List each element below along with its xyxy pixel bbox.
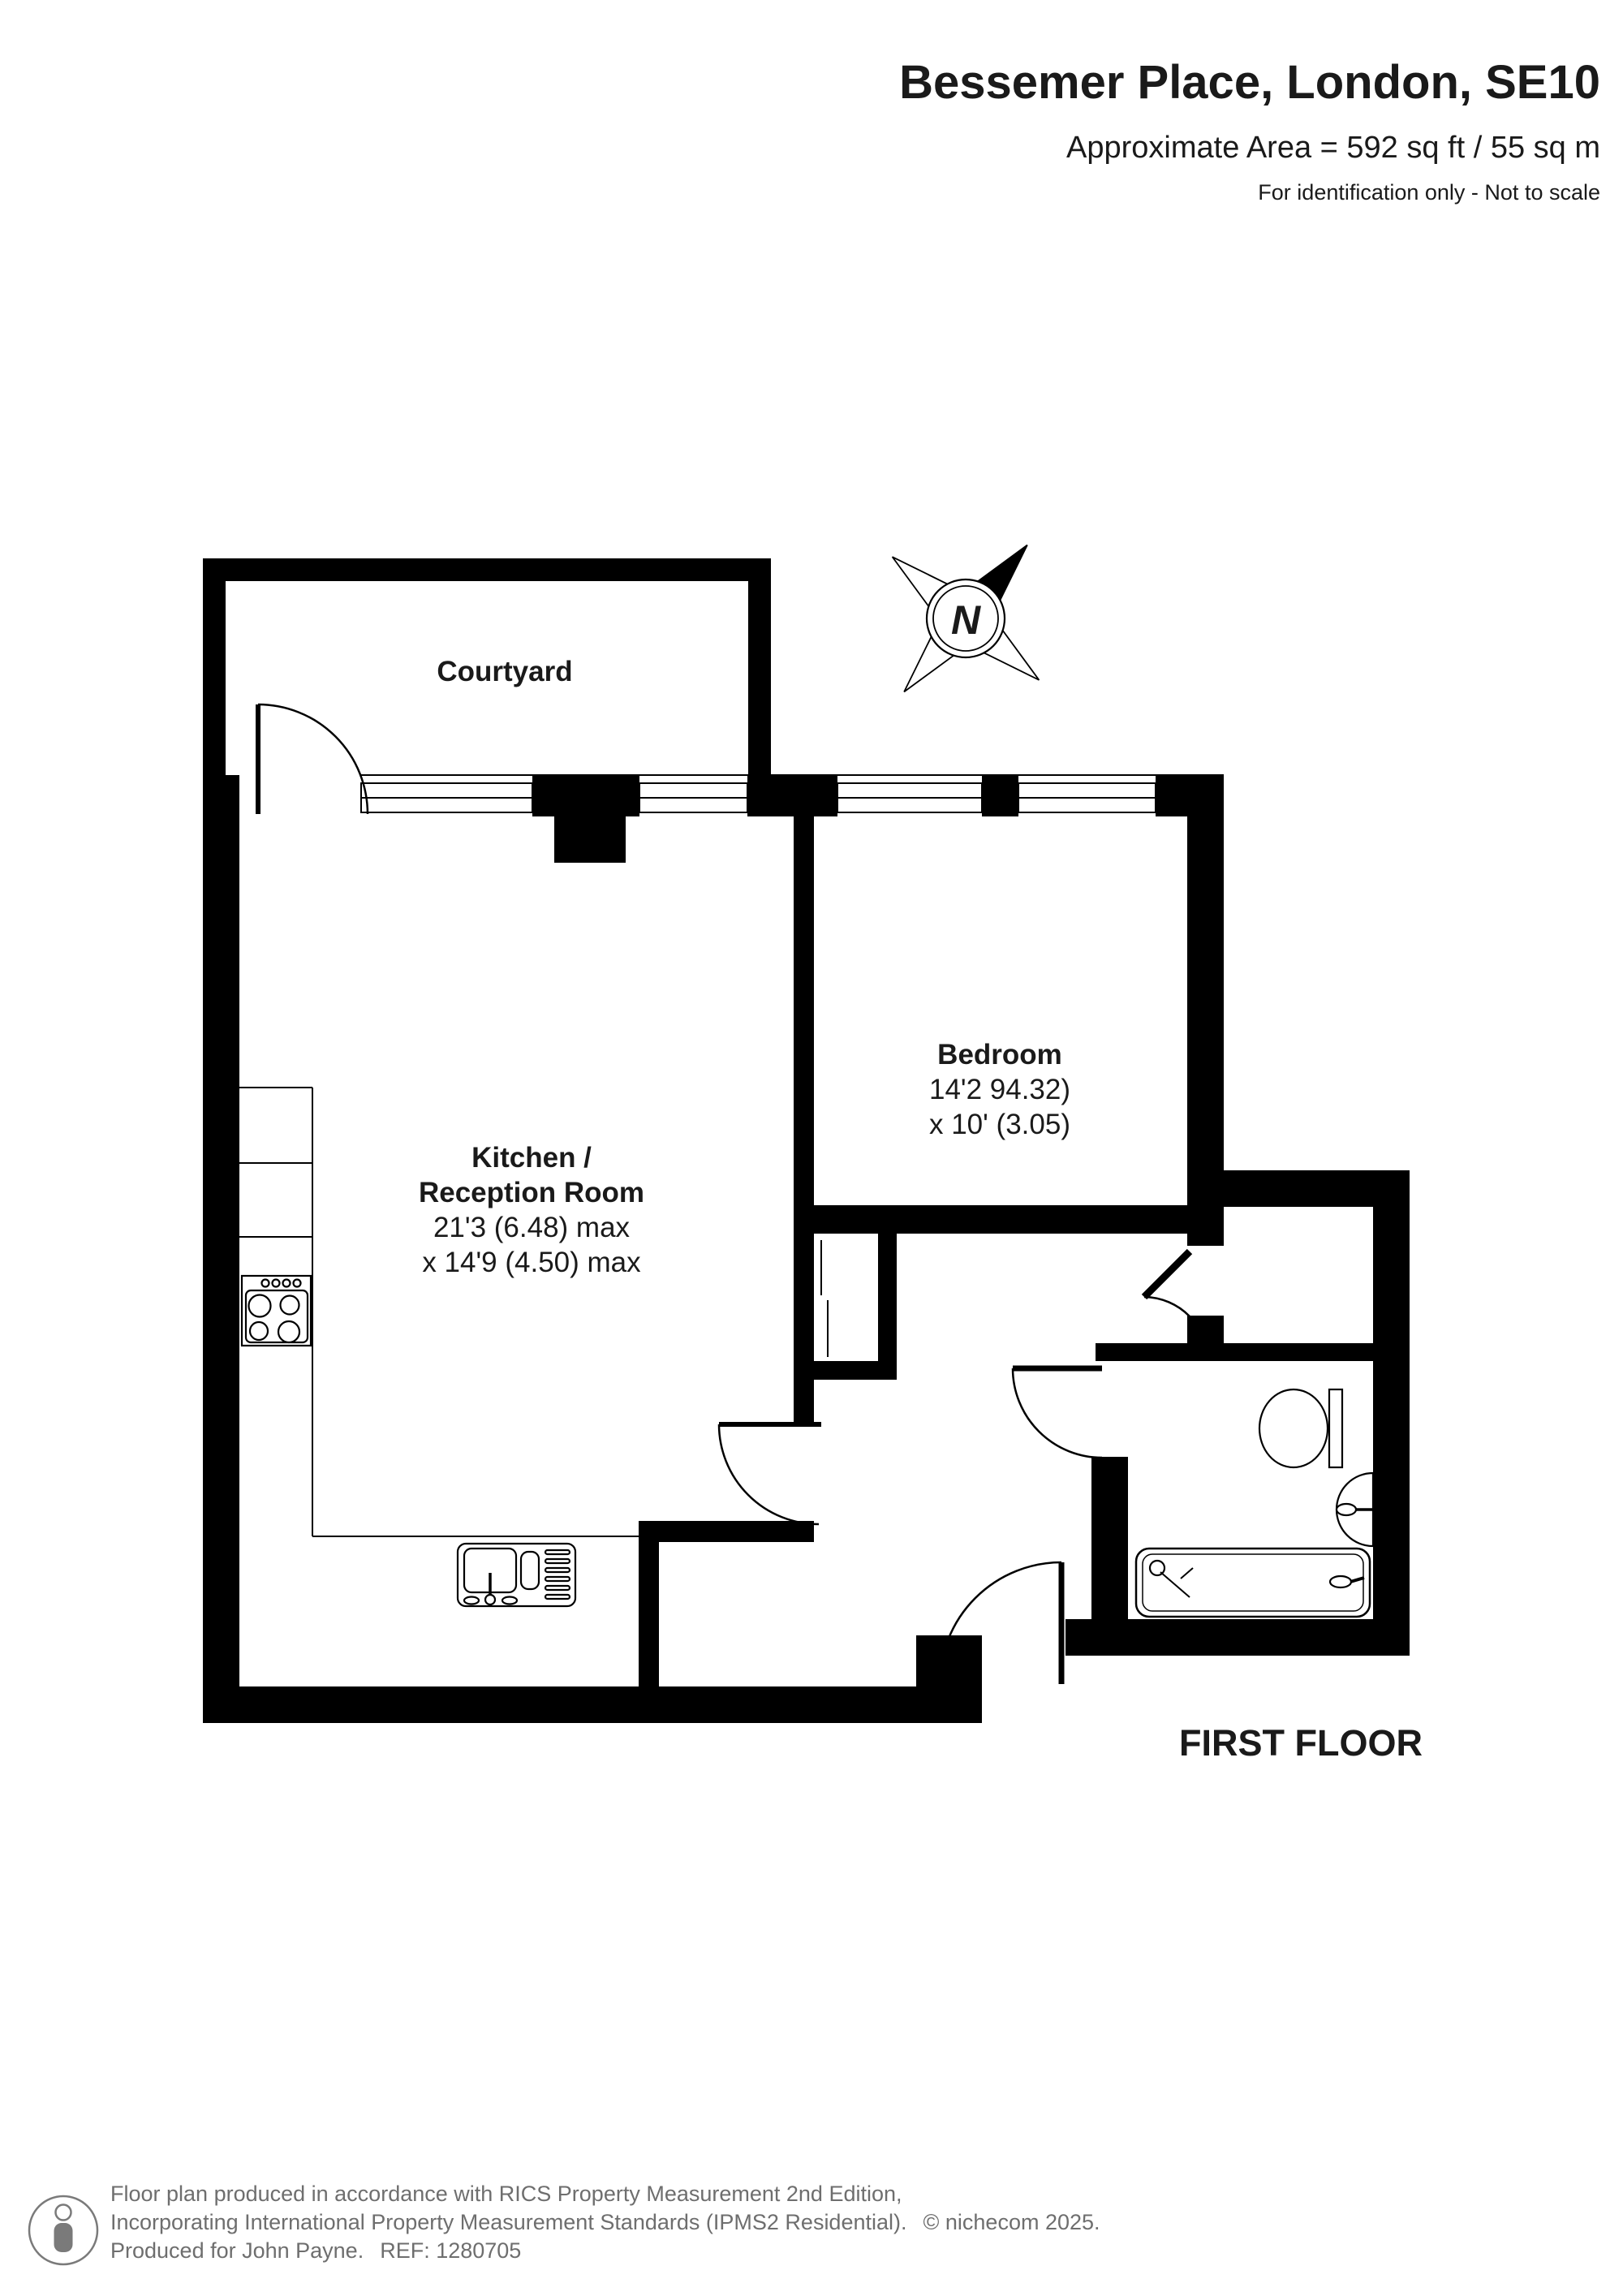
kitchen-label-line1: Kitchen / <box>419 1140 644 1175</box>
closet-bottom-wall <box>814 1361 897 1380</box>
sink-icon <box>458 1544 575 1606</box>
hob-icon <box>242 1276 311 1346</box>
compass-north-label: N <box>951 597 980 644</box>
footer-line1: Floor plan produced in accordance with R… <box>110 2180 1100 2208</box>
footer-line3: Produced for John Payne.REF: 1280705 <box>110 2237 1100 2265</box>
bathtub-icon <box>1136 1549 1370 1617</box>
kitchen-dims-line1: 21'3 (6.48) max <box>419 1210 644 1245</box>
bedroom-label: Bedroom 14'2 94.32) x 10' (3.05) <box>929 1037 1070 1142</box>
footer-copyright: © nichecom 2025. <box>923 2210 1100 2234</box>
bathroom-top-wall <box>1096 1343 1374 1361</box>
band-pier <box>982 775 1018 816</box>
window <box>639 783 747 812</box>
approximate-area: Approximate Area = 592 sq ft / 55 sq m <box>464 131 1600 166</box>
floorplan-page: { "header": { "title": "Bessemer Place, … <box>0 0 1623 2296</box>
window <box>1018 783 1156 812</box>
footer-produced-for: Produced for John Payne. <box>110 2238 364 2263</box>
toilet-icon <box>1259 1389 1342 1467</box>
kitchen-label-line2: Reception Room <box>419 1175 644 1210</box>
bathroom-left-wall <box>1091 1457 1128 1619</box>
identification-note: For identification only - Not to scale <box>464 180 1600 205</box>
right-outer-wall <box>1373 1170 1410 1656</box>
bathroom-fixtures <box>1136 1389 1373 1617</box>
header: Bessemer Place, London, SE10 Approximate… <box>464 0 1600 205</box>
bedroom-door <box>1144 1251 1190 1316</box>
bottom-right-wall <box>1065 1619 1410 1656</box>
band-pier-stub <box>554 812 626 863</box>
bedroom-label-line1: Bedroom <box>929 1037 1070 1072</box>
footer-line2-text: Incorporating International Property Mea… <box>110 2210 907 2234</box>
closet <box>821 1240 828 1357</box>
right-jog-wall <box>1224 1170 1410 1207</box>
window <box>837 783 982 812</box>
band-pier <box>532 775 639 816</box>
kitchen-hall-wall-lower <box>639 1542 659 1686</box>
courtyard-label: Courtyard <box>437 656 572 688</box>
window <box>361 783 532 812</box>
bedroom-right-wall <box>1187 812 1224 1246</box>
kitchen-hall-wall <box>639 1521 814 1542</box>
kitchen-reception-label: Kitchen / Reception Room 21'3 (6.48) max… <box>419 1140 644 1280</box>
kitchen-bedroom-divider-wall <box>794 812 814 1422</box>
band-pier <box>1156 775 1224 816</box>
bedroom-dims-line2: x 10' (3.05) <box>929 1107 1070 1142</box>
closet-right-wall <box>878 1234 897 1380</box>
kitchen-door <box>719 1424 821 1524</box>
courtyard-top-wall <box>203 558 771 581</box>
band-pier <box>747 775 837 816</box>
bath-tap-icon <box>1330 1576 1351 1587</box>
floorplan-drawing <box>0 0 1623 2296</box>
footer-ref: REF: 1280705 <box>380 2238 521 2263</box>
bottom-step-pillar <box>916 1635 982 1723</box>
left-outer-wall <box>203 775 239 1723</box>
bathroom-door <box>1013 1368 1102 1458</box>
footer-line2: Incorporating International Property Mea… <box>110 2208 1100 2237</box>
person-in-circle-logo-icon <box>29 2196 97 2264</box>
kitchen-dims-line2: x 14'9 (4.50) max <box>419 1245 644 1280</box>
bottom-left-wall <box>203 1686 982 1723</box>
bedroom-dims-line1: 14'2 94.32) <box>929 1072 1070 1107</box>
courtyard-door <box>258 704 368 814</box>
page-title: Bessemer Place, London, SE10 <box>464 55 1600 110</box>
basin-icon <box>1337 1473 1373 1546</box>
floor-label: FIRST FLOOR <box>1179 1722 1423 1764</box>
bedroom-bottom-wall <box>814 1205 1187 1234</box>
footer: Floor plan produced in accordance with R… <box>110 2180 1100 2265</box>
bedroom-door-pier <box>1187 1316 1224 1345</box>
